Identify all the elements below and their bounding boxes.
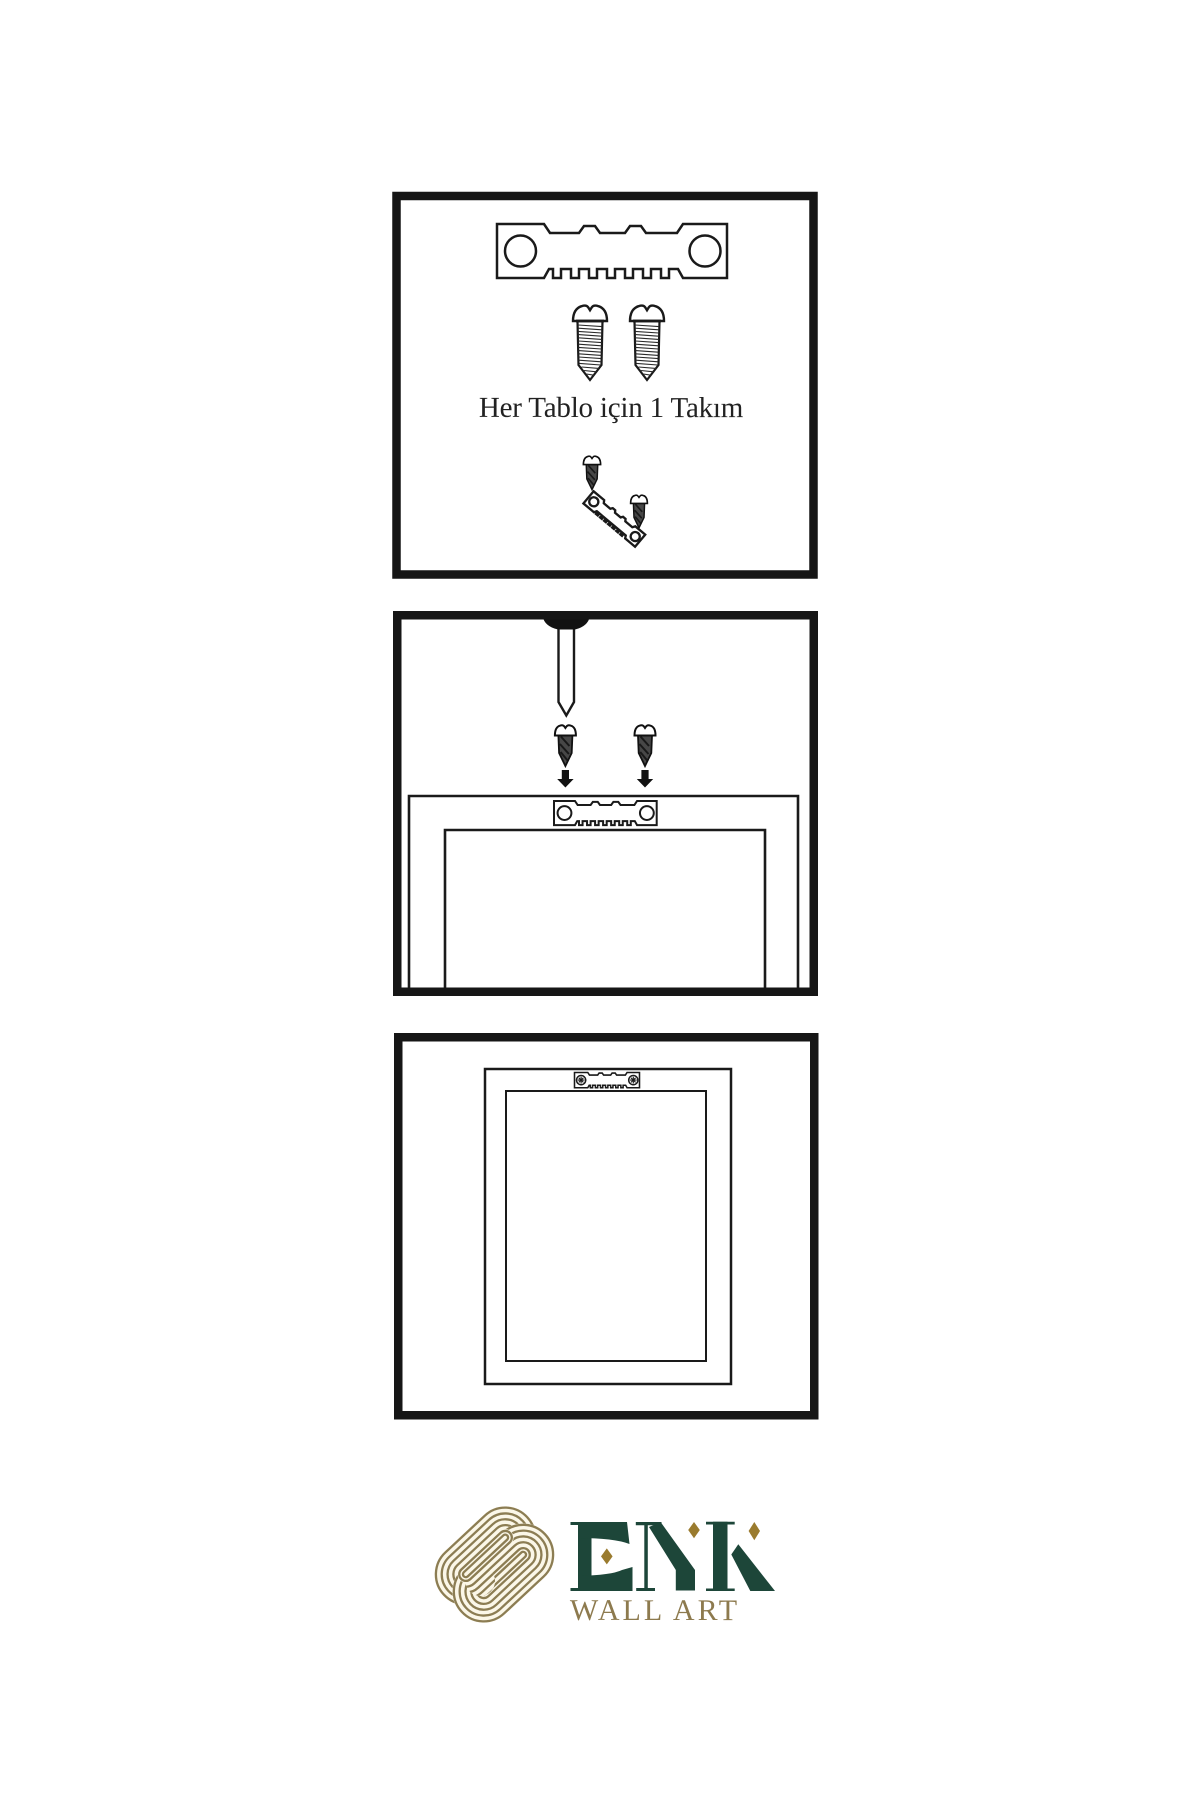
svg-text:Her Tablo için 1 Takım: Her Tablo için 1 Takım <box>479 392 744 424</box>
svg-text:WALL ART: WALL ART <box>570 1594 740 1627</box>
